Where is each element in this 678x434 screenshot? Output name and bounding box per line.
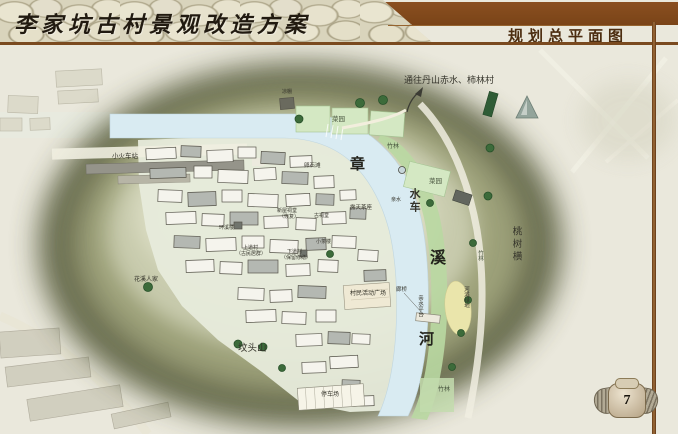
- label-waterfront: 亲水: [391, 198, 401, 204]
- label-parking: 停车场: [321, 392, 339, 399]
- label-pebble-beach: 卵石滩: [304, 163, 321, 169]
- label-waterfront-platform: 亲水平台: [417, 295, 423, 317]
- route-note: 通往丹山赤水、柿林村: [404, 76, 494, 86]
- label-pavilion: 凉棚: [282, 90, 292, 96]
- waterwheel-icon: [399, 167, 406, 174]
- label-xinwu-hall-2: （恢复）: [279, 215, 299, 221]
- label-huanxi-house: 环溪楼: [219, 226, 234, 232]
- label-tea-house: 小茶楼: [316, 240, 331, 246]
- page-title: 李家坑古村景观改造方案: [14, 7, 311, 39]
- label-gallery-bridge: 廊桥: [396, 287, 407, 293]
- label-lower-village-1: 下道村: [287, 250, 302, 256]
- bamboo-patch: [420, 378, 454, 412]
- header-subtitle: 规划总平面图: [498, 25, 638, 43]
- header-main-rule: [0, 42, 678, 45]
- site-plan-canvas: [0, 0, 678, 434]
- label-lower-village-2: （保留修缮）: [281, 256, 311, 262]
- label-riverside-green: 河滩绿地: [463, 286, 469, 308]
- river-name-char3: 河: [419, 332, 434, 349]
- label-bamboo-bottom: 竹林: [438, 387, 450, 394]
- green-bar-structure: [483, 91, 498, 117]
- label-upper-village-2: （古民居群）: [236, 252, 266, 258]
- page-number: 7: [624, 393, 631, 409]
- label-station: 小火车站: [112, 153, 138, 160]
- label-veg-garden-right: 菜园: [429, 178, 442, 185]
- label-peach-grove: 桃树横: [510, 226, 520, 264]
- label-tomb-hill: 坟头山: [238, 344, 267, 354]
- north-triangle-marker: [516, 96, 538, 118]
- label-xinwu-hall-1: 新屋祠堂: [277, 209, 297, 215]
- label-activity-plaza: 村民活动广场: [350, 291, 386, 298]
- emblem-cap: [615, 378, 639, 389]
- label-veg-garden-top: 菜园: [332, 116, 345, 123]
- side-rod-divider: [652, 22, 656, 434]
- label-tea-terrace: 露天茶座: [350, 205, 372, 211]
- river-name-char2: 溪: [430, 250, 446, 268]
- slide: { "header": { "title": "李家坑古村景观改造方案", "s…: [0, 0, 678, 434]
- label-bamboo-right: 竹林: [477, 250, 483, 261]
- label-old-hall: 古祠堂: [314, 214, 329, 220]
- river-name-char1: 章: [350, 157, 365, 174]
- label-waterwheel: 水车: [408, 188, 420, 214]
- label-huaxi-homes: 花溪人家: [134, 277, 158, 284]
- label-bamboo-top: 竹林: [387, 144, 399, 151]
- header-brown-bar: [376, 2, 678, 25]
- page-number-emblem: 7: [594, 378, 658, 424]
- label-upper-village-1: 上道村: [243, 246, 258, 252]
